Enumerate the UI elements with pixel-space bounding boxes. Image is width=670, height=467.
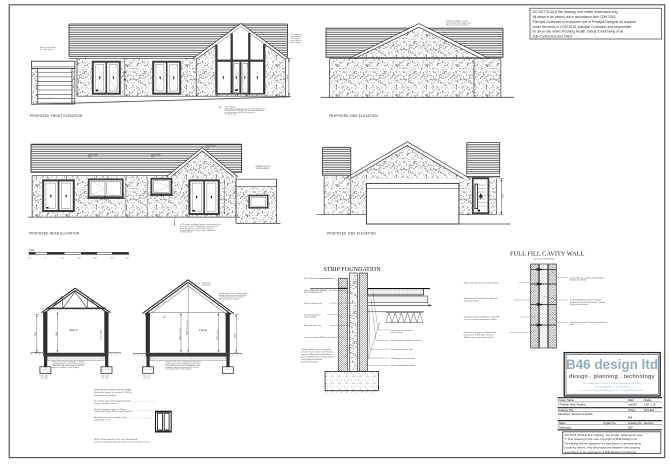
svg-text:PROPOSED SIDE ELEVATION: PROPOSED SIDE ELEVATION — [327, 231, 376, 235]
svg-text:003: 003 — [628, 426, 633, 430]
svg-text:3600 max to ridge: 3600 max to ridge — [186, 320, 189, 335]
svg-text:All works to be carried out in: All works to be carried out in accordanc… — [533, 15, 617, 19]
svg-text:4m: 4m — [111, 257, 114, 259]
svg-text:No. 1 High Street, Suite 9, Co: No. 1 High Street, Suite 9, Coleshill, B… — [584, 382, 641, 385]
svg-text:proprietary screws: proprietary screws — [94, 419, 111, 422]
svg-text:on 25x50 battens: on 25x50 battens — [40, 48, 54, 51]
svg-text:DO NOT SCALE this drawing, use: DO NOT SCALE this drawing, use written d… — [533, 10, 619, 14]
svg-text:Project No.: Project No. — [603, 421, 616, 425]
svg-text:1:50, 1:10: 1:50, 1:10 — [644, 402, 656, 406]
svg-text:2m: 2m — [78, 257, 81, 259]
svg-text:(Knauf fire board - as section: (Knauf fire board - as section 6: 2012 o… — [94, 391, 132, 394]
svg-text:glass to sides: glass to sides — [291, 41, 301, 44]
svg-text:conc. fnd: conc. fnd — [41, 377, 48, 379]
svg-text:t: 01675 4889967 m: 07795 65: t: 01675 4889967 m: 07795 657347 — [594, 386, 631, 389]
svg-text:for all on-site works includin: for all on-site works including Health, … — [533, 30, 624, 34]
svg-text:Internal finish to be 12.5mm p: Internal finish to be 12.5mm plasterboar… — [570, 321, 607, 324]
svg-text:2400 eaves: 2400 eaves — [217, 330, 219, 340]
svg-text:Bed 2: Bed 2 — [70, 328, 78, 332]
svg-text:Date: Date — [628, 398, 634, 402]
svg-text:150mm above external ground le: 150mm above external ground level — [464, 336, 495, 339]
svg-text:1m: 1m — [28, 257, 31, 259]
svg-text:and WC windows: and WC windows — [180, 232, 193, 234]
svg-text:e: gareth.critchley.uk@b46desi: e: gareth.critchley.uk@b46design.co.uk w… — [580, 389, 645, 392]
svg-text:Lean mix cavity fill 225mm bel: Lean mix cavity fill 225mm below dpc — [304, 336, 335, 339]
svg-text:3m: 3m — [94, 257, 97, 259]
svg-text:centres as will be manufacture: centres as will be manufacturers details — [464, 318, 497, 321]
svg-text:150mm thick concrete slab: 150mm thick concrete slab — [390, 348, 413, 351]
svg-text:PROPOSED SIDE ELEVATION: PROPOSED SIDE ELEVATION — [329, 114, 378, 118]
svg-text:conc. fnd: conc. fnd — [143, 377, 150, 379]
svg-text:SHOWN DASHED: SHOWN DASHED — [256, 167, 271, 170]
svg-text:Sub-Contractors and Client: Sub-Contractors and Client — [533, 35, 573, 39]
svg-text:1200g damp proof membrane: 1200g damp proof membrane — [390, 357, 415, 360]
svg-text:K106 full fill insulation: K106 full fill insulation — [301, 360, 318, 363]
svg-text:Drawing No.: Drawing No. — [628, 421, 643, 425]
svg-text:B46 design ltd: B46 design ltd — [566, 357, 658, 372]
svg-text:(achieves 0.28 W/m2K): (achieves 0.28 W/m2K) — [534, 258, 555, 260]
svg-text:Status: Status — [558, 421, 566, 425]
svg-text:centres with 35mm Knauf Drywal: centres with 35mm Knauf Drywall Screws. — [94, 410, 133, 413]
svg-text:Drawing Title: Drawing Title — [558, 408, 574, 412]
svg-text:90mm Kingspan Kooltherm insula: 90mm Kingspan Kooltherm insulation — [390, 339, 421, 342]
svg-text:fibre cement slates on battens: fibre cement slates on battens — [446, 23, 469, 26]
svg-text:butt joints and fixed with pro: butt joints and fixed with proprietary s… — [94, 441, 150, 444]
svg-text:10mm residual cavity: 10mm residual cavity — [570, 303, 588, 306]
svg-text:2400: 2400 — [35, 332, 37, 336]
svg-text:cement screed: cement screed — [390, 331, 402, 334]
svg-text:conc. fnd: conc. fnd — [102, 377, 109, 379]
svg-text:Drawn: Drawn — [628, 408, 636, 412]
svg-text:Principal Contractor is to ass: Principal Contractor is to assume role o… — [533, 20, 637, 24]
svg-text:under the terms of CDM 2015, p: under the terms of CDM 2015, principal C… — [533, 25, 632, 29]
svg-text:Checked: Checked — [644, 408, 655, 412]
svg-text:Revision: Revision — [644, 421, 655, 425]
svg-text:STRIP FOUNDATION: STRIP FOUNDATION — [324, 267, 382, 273]
svg-text:Project Name: Project Name — [558, 398, 574, 402]
svg-text:50mm residual cavity: 50mm residual cavity — [304, 302, 322, 305]
svg-text:April'24: April'24 — [628, 402, 637, 406]
svg-text:fixings at 600mm centres: fixings at 600mm centres — [94, 402, 117, 405]
svg-text:FULL FILL CAVITY WALL: FULL FILL CAVITY WALL — [510, 250, 585, 257]
svg-text:PROPOSED REAR ELEVATION: PROPOSED REAR ELEVATION — [29, 231, 80, 235]
svg-text:Blockwork inner skin: Blockwork inner skin — [304, 324, 321, 327]
svg-text:1m: 1m — [61, 257, 64, 259]
svg-text:PROPOSED FRONT ELEVATION: PROPOSED FRONT ELEVATION — [30, 114, 83, 118]
svg-text:match existing: match existing — [304, 316, 316, 319]
svg-text:150mm sand blinded hardcore: 150mm sand blinded hardcore — [390, 364, 416, 367]
svg-text:FIRE PROTECTION OF STEEL BEAM: FIRE PROTECTION OF STEEL BEAM — [94, 389, 131, 392]
svg-text:Living: Living — [199, 328, 207, 332]
svg-text:2400: 2400 — [56, 332, 58, 336]
svg-text:manufacturer's details): manufacturer's details) — [94, 394, 116, 397]
svg-text:Walls to be built with 1:1:6 c: Walls to be built with 1:1:6 cement mort… — [464, 281, 499, 284]
svg-text:5m: 5m — [126, 257, 129, 259]
svg-text:ceiling 2400: ceiling 2400 — [101, 330, 103, 340]
svg-text:1:50: 1:50 — [29, 248, 35, 252]
svg-text:K106 full fill insulation: K106 full fill insulation — [304, 291, 322, 294]
svg-text:Elevations, Sections & Details: Elevations, Sections & Details — [558, 412, 593, 416]
svg-text:design . planning . technology: design . planning . technology — [569, 374, 655, 380]
svg-text:2400 min clear: 2400 min clear — [178, 327, 181, 340]
svg-text:Preliminary: Preliminary — [558, 426, 572, 430]
svg-text:waterproof additive: waterproof additive — [464, 299, 480, 302]
svg-text:and others to be reported to a: and others to be reported to a B46 Desig… — [565, 450, 637, 454]
svg-text:2400: 2400 — [235, 334, 237, 338]
svg-text:by engineer: by engineer — [202, 283, 211, 286]
svg-text:2 Parklife View, Packton: 2 Parklife View, Packton — [558, 402, 586, 406]
svg-text:BM: BM — [628, 416, 632, 420]
svg-text:Scales: Scales — [644, 398, 652, 402]
svg-text:DPC 150mm above ground level: DPC 150mm above ground level — [304, 277, 332, 280]
svg-text:dabs: dabs — [570, 324, 574, 326]
svg-text:Novelle 0.45 W/mK: Novelle 0.45 W/mK — [570, 280, 587, 282]
